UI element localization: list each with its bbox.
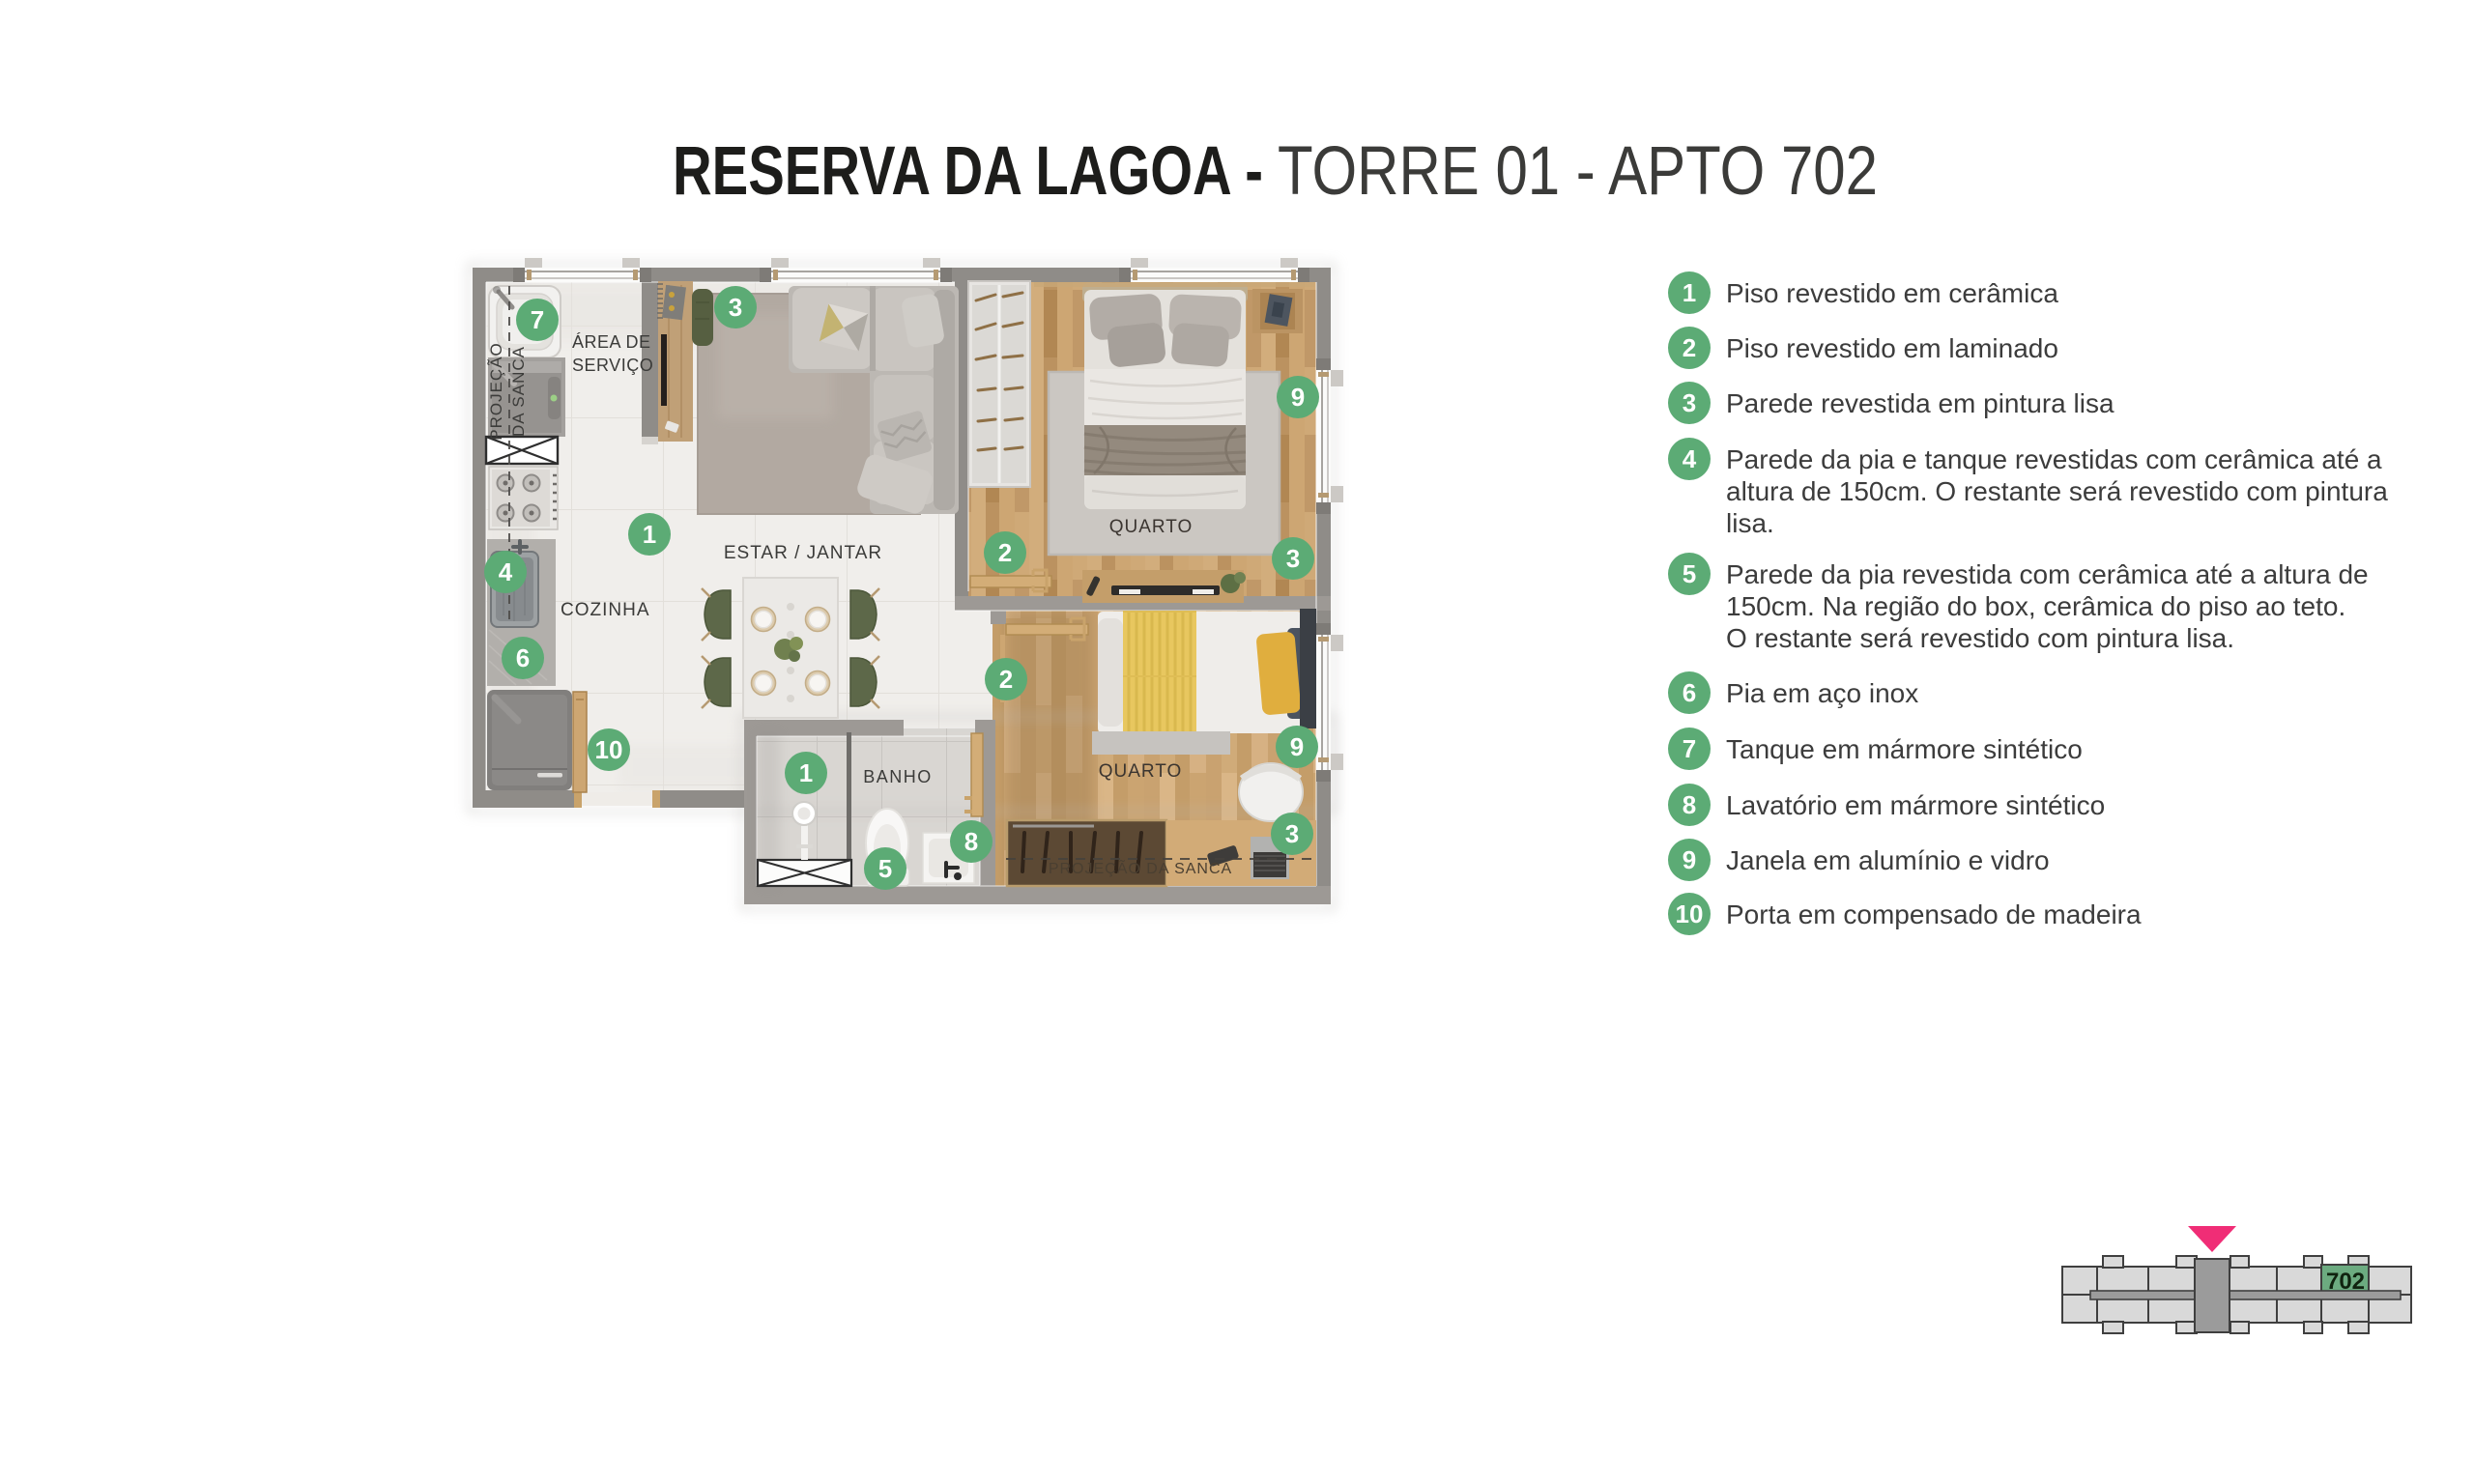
svg-text:QUARTO: QUARTO [1109, 517, 1194, 537]
svg-text:2: 2 [999, 665, 1013, 694]
svg-text:8: 8 [1683, 790, 1696, 819]
svg-text:3: 3 [1683, 388, 1696, 417]
svg-text:4: 4 [1683, 444, 1697, 473]
svg-text:8: 8 [964, 827, 978, 856]
svg-text:3: 3 [1285, 819, 1299, 848]
svg-text:altura de 150cm. O restante se: altura de 150cm. O restante será revesti… [1726, 476, 2388, 506]
svg-text:ESTAR / JANTAR: ESTAR / JANTAR [724, 543, 882, 563]
svg-text:PROJEÇÃO: PROJEÇÃO [487, 342, 505, 441]
svg-text:1: 1 [799, 758, 813, 787]
svg-text:5: 5 [1683, 559, 1696, 588]
svg-text:DA SANCA: DA SANCA [509, 346, 528, 437]
svg-text:9: 9 [1290, 732, 1304, 761]
svg-text:150cm. Na região do box, cerâm: 150cm. Na região do box, cerâmica do pis… [1726, 591, 2345, 621]
svg-text:BANHO: BANHO [863, 767, 933, 786]
svg-text:PROJEÇÃO DA SANCA: PROJEÇÃO DA SANCA [1049, 858, 1232, 877]
svg-text:RESERVA DA LAGOA -: RESERVA DA LAGOA - [673, 133, 1263, 210]
svg-text:2: 2 [1683, 333, 1696, 362]
svg-text:2: 2 [998, 538, 1012, 567]
svg-text:1: 1 [643, 520, 656, 549]
svg-text:1: 1 [1683, 278, 1696, 307]
svg-text:TORRE 01 - APTO 702: TORRE 01 - APTO 702 [1278, 133, 1878, 210]
svg-text:lisa.: lisa. [1726, 508, 1774, 538]
svg-text:5: 5 [878, 854, 892, 883]
svg-text:Parede da pia e tanque revesti: Parede da pia e tanque revestidas com ce… [1726, 444, 2382, 474]
svg-text:3: 3 [1286, 544, 1300, 573]
svg-text:6: 6 [516, 643, 530, 672]
svg-text:6: 6 [1683, 678, 1696, 707]
svg-text:SERVIÇO: SERVIÇO [572, 356, 653, 375]
svg-text:10: 10 [595, 735, 623, 764]
svg-text:COZINHA: COZINHA [561, 600, 650, 620]
svg-text:ÁREA DE: ÁREA DE [572, 332, 651, 352]
svg-text:4: 4 [499, 557, 513, 586]
svg-text:10: 10 [1676, 899, 1704, 928]
svg-text:3: 3 [729, 293, 742, 322]
svg-text:Porta em compensado de madeira: Porta em compensado de madeira [1726, 899, 2142, 929]
svg-text:7: 7 [1683, 734, 1696, 763]
svg-text:Janela em alumínio e vidro: Janela em alumínio e vidro [1726, 845, 2050, 875]
svg-text:O restante será revestido com: O restante será revestido com pintura li… [1726, 623, 2234, 653]
svg-text:Piso revestido em cerâmica: Piso revestido em cerâmica [1726, 278, 2058, 308]
svg-text:Lavatório em mármore sintético: Lavatório em mármore sintético [1726, 790, 2105, 820]
svg-text:Tanque em mármore sintético: Tanque em mármore sintético [1726, 734, 2083, 764]
svg-text:Parede da pia revestida com ce: Parede da pia revestida com cerâmica até… [1726, 559, 2369, 589]
svg-text:QUARTO: QUARTO [1099, 761, 1183, 782]
svg-text:9: 9 [1683, 845, 1696, 874]
svg-text:7: 7 [531, 305, 544, 334]
svg-text:9: 9 [1291, 383, 1305, 412]
svg-text:Pia em aço inox: Pia em aço inox [1726, 678, 1918, 708]
svg-text:Piso revestido em laminado: Piso revestido em laminado [1726, 333, 2058, 363]
svg-text:Parede revestida em pintura li: Parede revestida em pintura lisa [1726, 388, 2114, 418]
